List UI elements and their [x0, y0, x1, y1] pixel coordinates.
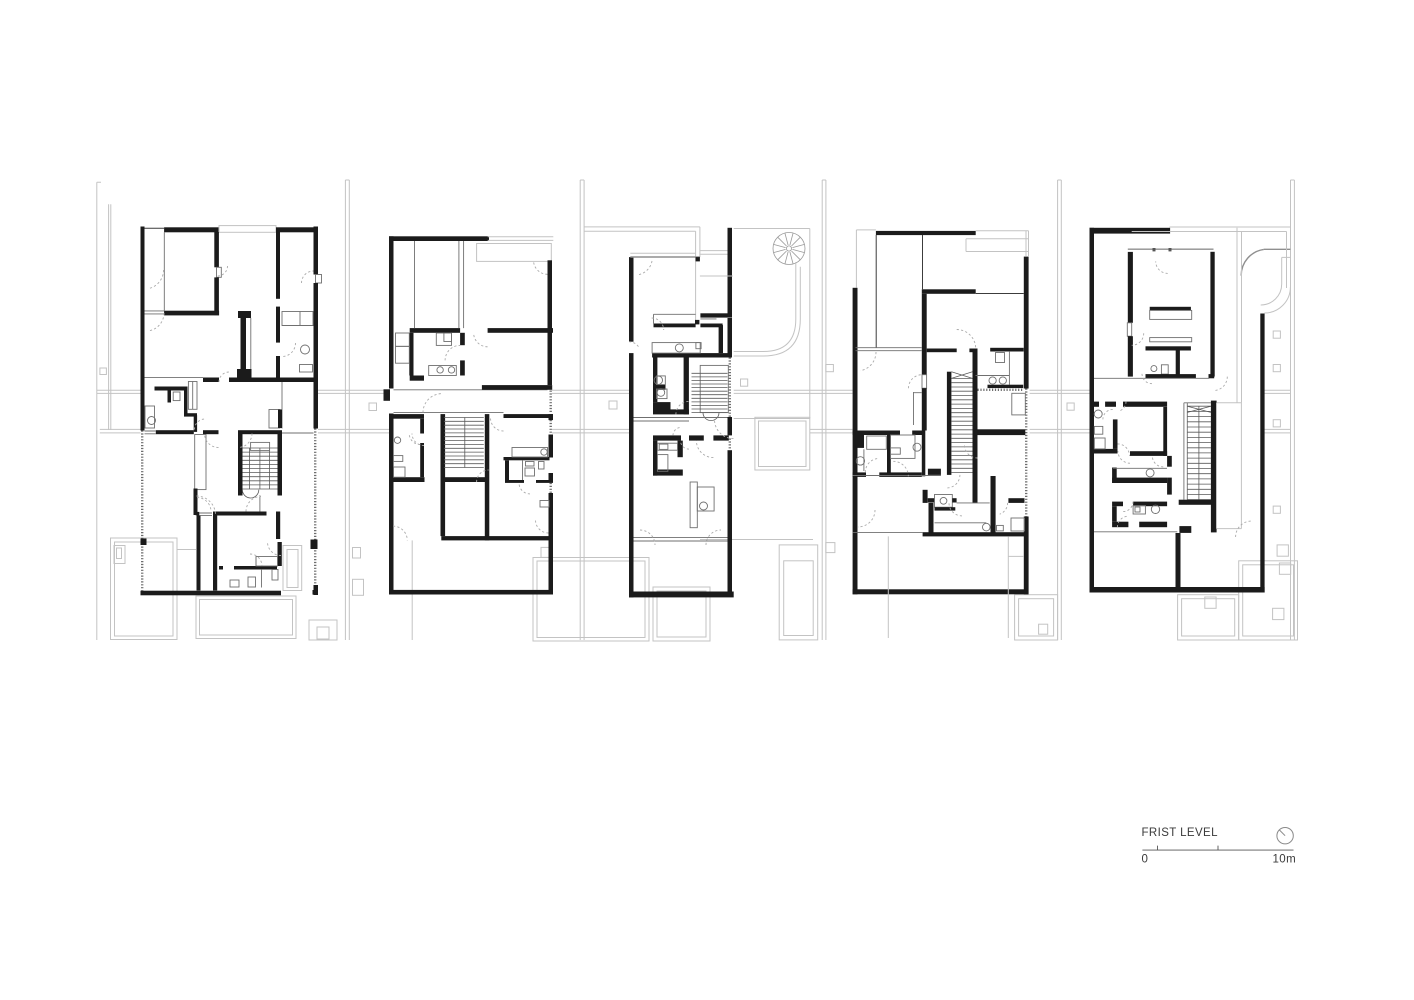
svg-text:10m: 10m	[1273, 854, 1297, 866]
svg-text:FRIST LEVEL: FRIST LEVEL	[1142, 827, 1219, 839]
svg-text:0: 0	[1142, 854, 1149, 866]
